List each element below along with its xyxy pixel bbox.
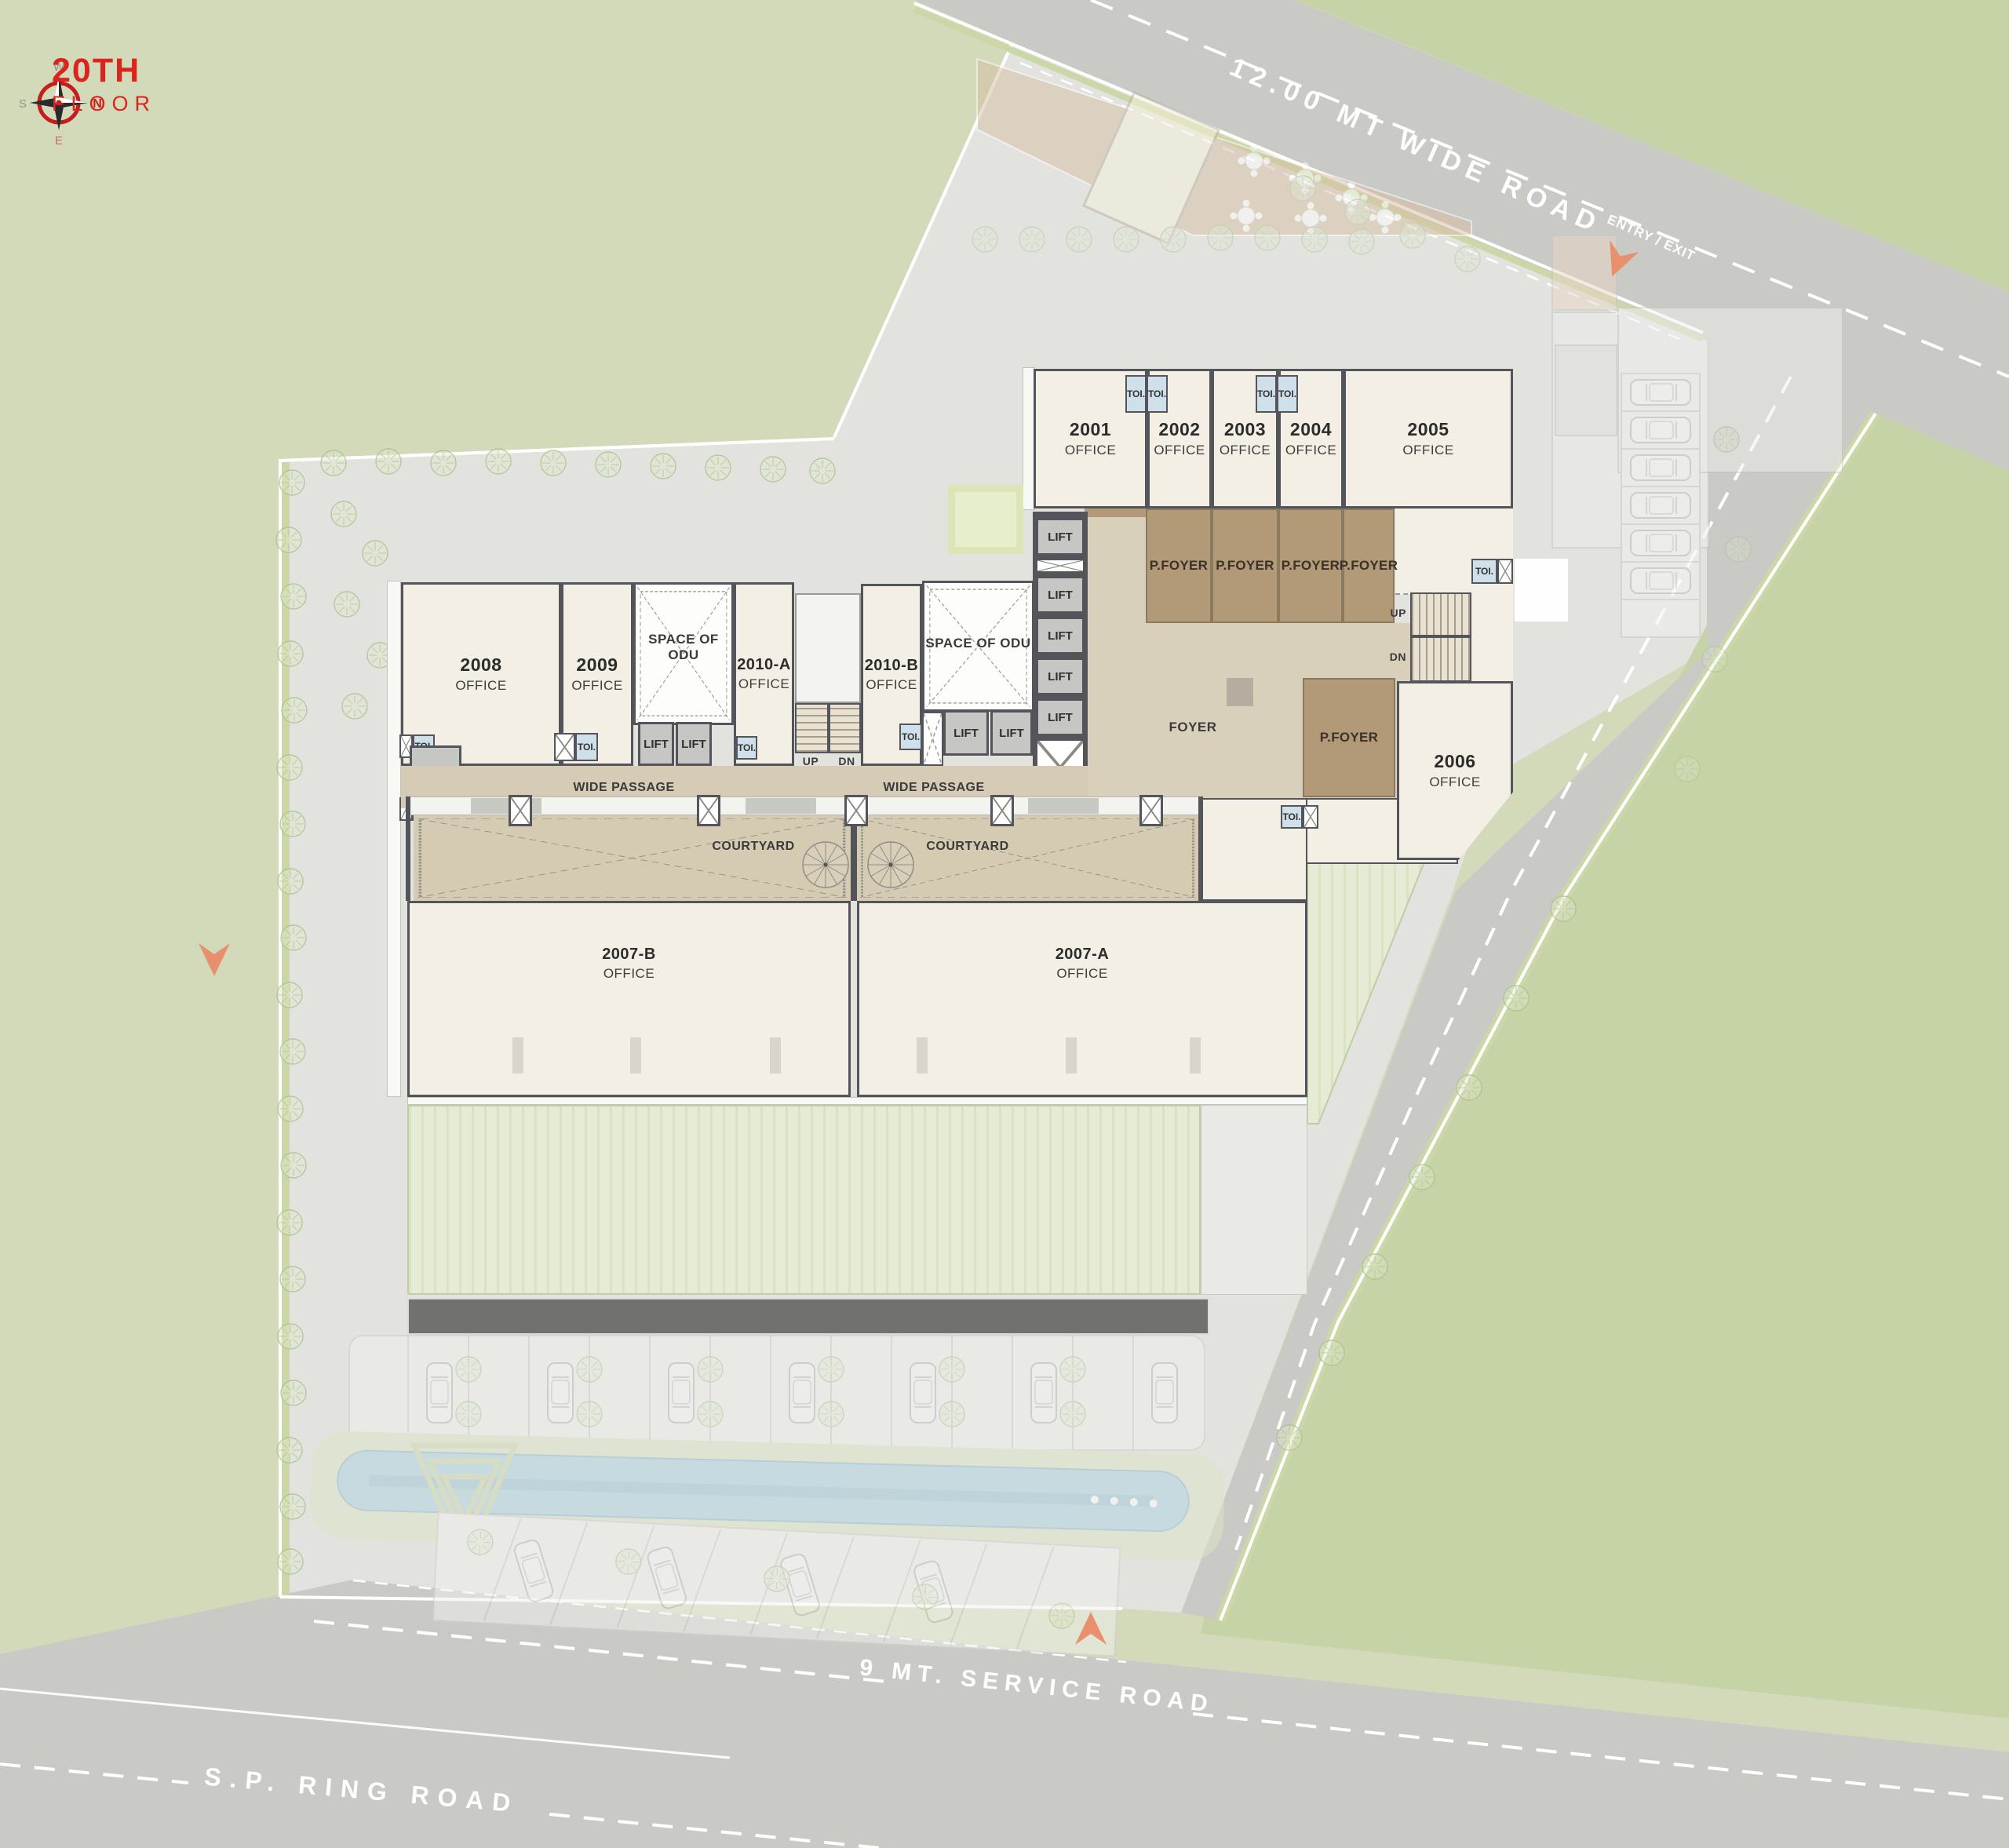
room-2006-type: OFFICE: [1429, 775, 1480, 790]
court-shaft-4: [990, 795, 1014, 826]
wall-seg-2: [746, 798, 816, 814]
room-2003-number: 2003: [1224, 419, 1266, 440]
toilet-east-1: TOI.: [1471, 559, 1497, 584]
compass-s: S: [19, 97, 27, 111]
shaft-east-1: [1497, 559, 1513, 584]
foyer-column: [1227, 678, 1253, 706]
room-2004-type: OFFICE: [1285, 443, 1336, 458]
terrace-south: [407, 1105, 1201, 1295]
courtyard-left-label: COURTYARD: [691, 838, 816, 855]
stairs-north: [1410, 592, 1471, 682]
room-2010a-type: OFFICE: [738, 676, 789, 692]
room-2008-number: 2008: [460, 654, 501, 676]
highlight-block: [1515, 559, 1568, 621]
compass-e: E: [55, 134, 63, 148]
column-mark: [630, 1037, 641, 1073]
lift-odu1-a: LIFT: [638, 722, 674, 766]
page-title: 20TH FLOOR: [52, 52, 156, 116]
room-2003-type: OFFICE: [1220, 443, 1271, 458]
odu2-duct: [922, 712, 943, 766]
west-wing-rim: [387, 581, 401, 1097]
room-2001-type: OFFICE: [1065, 443, 1116, 458]
planter-centre: [948, 485, 1023, 554]
room-2007a-type: OFFICE: [1056, 966, 1107, 982]
room-2008-type: OFFICE: [455, 678, 506, 694]
floor-plan-canvas: 12.00 MT WIDE ROAD 9 MT. SERVICE ROAD S.…: [0, 0, 2009, 1848]
column-mark: [1066, 1037, 1077, 1073]
space-of-odu-1: SPACE OF ODU: [633, 582, 734, 725]
column-mark: [917, 1037, 928, 1073]
court-shaft-5: [1139, 795, 1163, 826]
p-foyer-5: P.FOYER: [1303, 678, 1395, 797]
terrace-south-east: [1201, 1105, 1307, 1295]
room-2010a-number: 2010-A: [737, 656, 791, 674]
stairs-north-up-label: UP: [1372, 606, 1406, 620]
courtyard-left: [414, 815, 851, 901]
toilet-2010b: TOI.: [899, 724, 922, 750]
wall-seg-3: [1028, 798, 1099, 814]
room-2006-number: 2006: [1434, 751, 1475, 772]
column-mark: [512, 1037, 523, 1073]
lift-core-shaft-1: [1036, 559, 1085, 573]
shaft-south-east: [1303, 805, 1318, 829]
room-2004-number: 2004: [1290, 419, 1332, 440]
room-2010b-type: OFFICE: [866, 677, 917, 693]
stair-landing-east: [1470, 584, 1513, 687]
shaft-2009: [554, 733, 575, 761]
p-foyer-2: P.FOYER: [1212, 508, 1278, 623]
room-2002-number: 2002: [1158, 419, 1200, 440]
room-2009-type: OFFICE: [571, 678, 622, 694]
foyer-label: FOYER: [1130, 719, 1256, 736]
floor-word: FLOOR: [52, 92, 156, 116]
space-of-odu-2: SPACE OF ODU: [922, 581, 1034, 712]
stairs-north-dn-label: DN: [1372, 650, 1406, 664]
toilet-north-1b: TOI.: [1147, 375, 1168, 413]
courtyard-wall-left: [406, 796, 410, 901]
room-2007b-number: 2007-B: [602, 946, 656, 964]
toilet-south-east: TOI.: [1281, 805, 1303, 829]
room-2005-type: OFFICE: [1402, 443, 1453, 458]
lift-core-5: LIFT: [1036, 698, 1085, 736]
court-shaft-1: [509, 795, 532, 826]
courtyard-right-label: COURTYARD: [905, 838, 1030, 855]
room-2002-type: OFFICE: [1154, 443, 1205, 458]
court-shaft-3: [844, 795, 868, 826]
p-foyer-3: P.FOYER: [1278, 508, 1343, 623]
stairs-west: [795, 703, 861, 753]
lift-core-3: LIFT: [1036, 617, 1085, 654]
toilet-2009: TOI.: [575, 733, 598, 761]
toilet-north-1a: TOI.: [1125, 375, 1147, 413]
toilet-north-2b: TOI.: [1277, 375, 1298, 413]
room-2009-number: 2009: [576, 654, 618, 676]
space-of-odu-1-label: SPACE OF ODU: [636, 632, 731, 663]
room-2001-number: 2001: [1070, 419, 1111, 440]
room-2005: 2005 OFFICE: [1344, 369, 1513, 508]
courtyard-wall-right: [1198, 796, 1203, 901]
p-foyer-1: P.FOYER: [1146, 508, 1212, 623]
toilet-2010a: TOI.: [736, 736, 757, 760]
wide-passage-label-2: WIDE PASSAGE: [859, 780, 1008, 796]
floor-number: 20TH: [52, 52, 156, 90]
space-of-odu-2-label: SPACE OF ODU: [924, 636, 1032, 651]
column-mark: [1190, 1037, 1201, 1073]
room-2005-number: 2005: [1407, 419, 1449, 440]
lift-odu2-b: LIFT: [990, 710, 1033, 756]
toilet-north-2a: TOI.: [1256, 375, 1277, 413]
lift-core-1: LIFT: [1036, 518, 1085, 556]
lift-odu1-b: LIFT: [676, 722, 712, 766]
room-2010b-number: 2010-B: [865, 657, 919, 675]
lift-core-2: LIFT: [1036, 576, 1085, 614]
room-2007b: 2007-B OFFICE: [407, 901, 851, 1097]
column-mark: [770, 1037, 781, 1073]
lift-core-4: LIFT: [1036, 658, 1085, 695]
wide-passage-label-1: WIDE PASSAGE: [549, 780, 698, 796]
void-above-stairs: [795, 593, 861, 703]
south-rim: [407, 1097, 1307, 1105]
courtyard-right: [857, 815, 1198, 901]
room-2007a-number: 2007-A: [1056, 946, 1110, 964]
room-2007b-type: OFFICE: [603, 966, 654, 982]
lift-odu2-a: LIFT: [943, 710, 989, 756]
court-shaft-2: [697, 795, 720, 826]
